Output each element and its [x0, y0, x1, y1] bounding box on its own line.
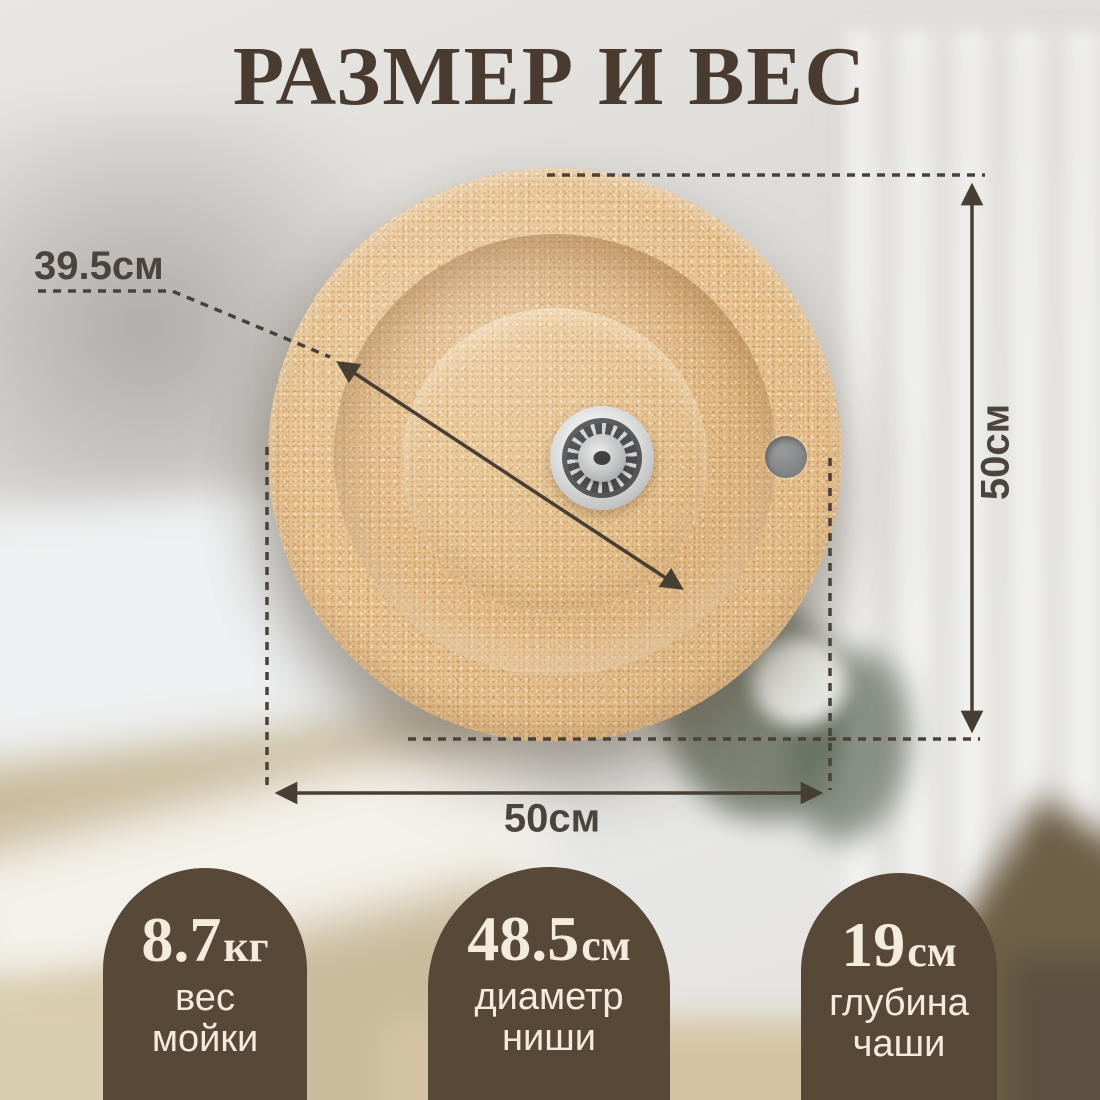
drain-strainer — [550, 406, 654, 510]
spec-caption-line: диаметр — [428, 977, 670, 1018]
height-label: 50см — [974, 404, 1019, 500]
background-flower — [752, 638, 847, 726]
background-corner-dark — [1010, 960, 1100, 1100]
drain-knob — [594, 451, 611, 465]
spec-caption: диаметр ниши — [428, 977, 670, 1059]
spec-value: 19 — [841, 913, 905, 977]
spec-badge-bowl-depth: 19 см глубина чаши — [801, 873, 997, 1100]
spec-caption: вес мойки — [103, 978, 307, 1060]
drain-cap — [578, 434, 626, 482]
spec-unit: кг — [223, 925, 268, 969]
sink-photo — [268, 168, 842, 742]
spec-caption-line: мойки — [103, 1019, 307, 1060]
spec-caption-line: вес — [103, 978, 307, 1019]
spec-caption-line: чаши — [801, 1024, 997, 1065]
spec-caption-line: ниши — [428, 1018, 670, 1059]
faucet-hole — [765, 436, 807, 478]
spec-unit: см — [581, 924, 631, 968]
inner-diameter-label: 39.5см — [34, 244, 164, 289]
product-infographic: РАЗМЕР И ВЕС 39 — [0, 0, 1100, 1100]
width-label: 50см — [504, 797, 600, 842]
page-title: РАЗМЕР И ВЕС — [0, 28, 1100, 125]
spec-value-row: 48.5 см — [428, 907, 670, 971]
drain-ring — [562, 418, 642, 498]
spec-badge-niche-diameter: 48.5 см диаметр ниши — [428, 867, 670, 1100]
spec-value: 48.5 — [467, 907, 579, 971]
sink-bowl — [334, 234, 776, 676]
sink-bowl-floor — [402, 308, 708, 614]
spec-unit: см — [907, 930, 957, 974]
spec-caption: глубина чаши — [801, 983, 997, 1065]
spec-caption-line: глубина — [801, 983, 997, 1024]
spec-badge-weight: 8.7 кг вес мойки — [103, 868, 307, 1100]
spec-value: 8.7 — [141, 908, 221, 972]
spec-value-row: 8.7 кг — [103, 908, 307, 972]
spec-value-row: 19 см — [801, 913, 997, 977]
